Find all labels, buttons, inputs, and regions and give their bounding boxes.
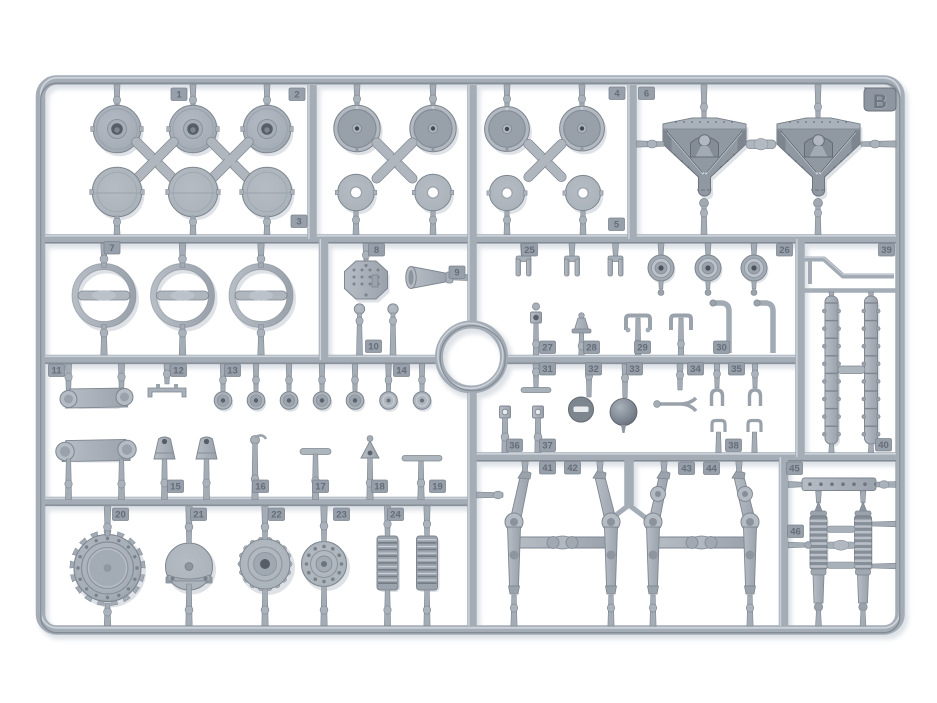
svg-text:43: 43 [681,464,692,475]
svg-text:16: 16 [255,482,266,493]
svg-text:40: 40 [878,440,889,451]
svg-text:31: 31 [542,364,553,375]
svg-text:8: 8 [374,245,379,256]
svg-text:17: 17 [315,482,326,493]
svg-text:7: 7 [109,243,114,254]
svg-text:38: 38 [728,441,739,452]
svg-text:42: 42 [567,463,578,474]
svg-text:37: 37 [542,441,553,452]
svg-text:41: 41 [542,463,553,474]
svg-text:34: 34 [690,364,701,375]
svg-text:10: 10 [368,342,379,353]
svg-text:3: 3 [296,217,301,228]
svg-text:18: 18 [374,482,385,493]
svg-text:36: 36 [509,441,520,452]
svg-text:B: B [873,92,887,113]
svg-text:20: 20 [115,510,126,521]
svg-text:45: 45 [789,464,800,475]
svg-text:6: 6 [644,89,649,100]
svg-text:11: 11 [51,366,62,377]
svg-text:2: 2 [294,90,299,101]
svg-text:39: 39 [881,245,892,256]
svg-text:19: 19 [432,482,443,493]
svg-text:4: 4 [614,89,620,100]
svg-text:25: 25 [524,245,535,256]
svg-text:14: 14 [396,366,407,377]
svg-text:15: 15 [170,482,181,493]
svg-text:9: 9 [454,268,459,279]
svg-text:30: 30 [716,343,727,354]
svg-text:13: 13 [227,366,238,377]
svg-text:35: 35 [731,364,742,375]
svg-text:1: 1 [176,90,182,101]
svg-text:32: 32 [588,364,599,375]
svg-text:24: 24 [390,510,401,521]
svg-text:22: 22 [271,510,282,521]
svg-text:44: 44 [706,464,717,475]
svg-text:46: 46 [790,527,801,538]
svg-text:12: 12 [173,366,184,377]
svg-text:27: 27 [542,343,553,354]
svg-text:21: 21 [193,510,204,521]
svg-text:5: 5 [614,220,620,231]
svg-text:26: 26 [779,245,790,256]
svg-text:33: 33 [629,364,640,375]
svg-text:23: 23 [336,510,347,521]
svg-text:28: 28 [586,343,597,354]
svg-text:29: 29 [637,343,648,354]
